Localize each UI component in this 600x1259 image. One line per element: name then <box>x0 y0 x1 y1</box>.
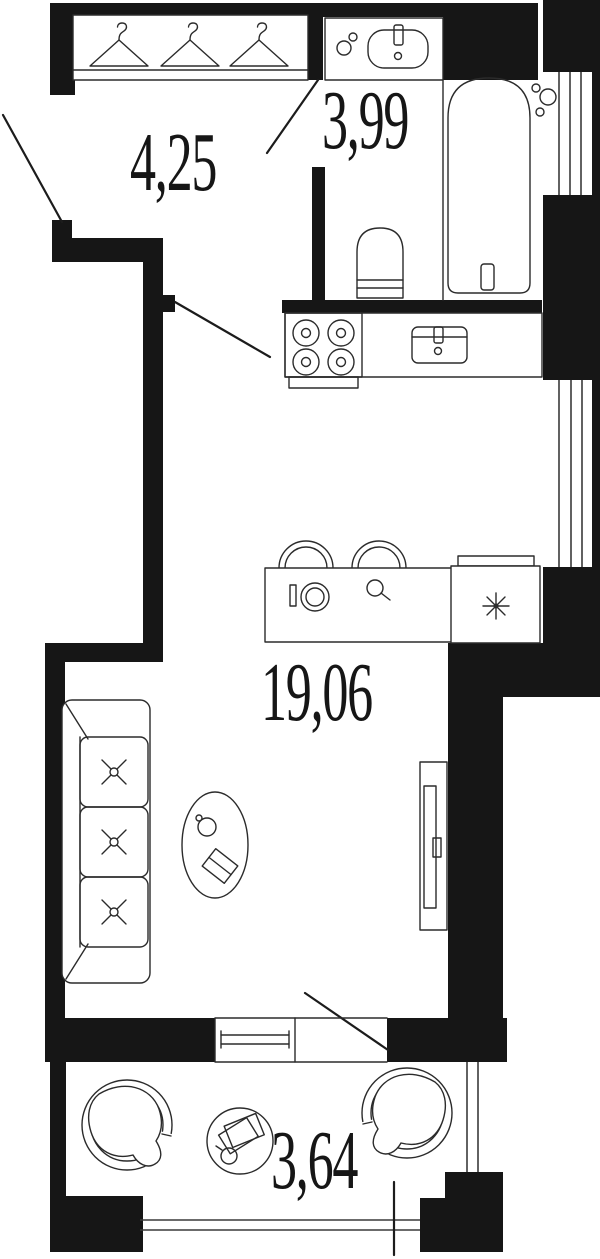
wardrobe <box>73 15 308 80</box>
room-area-label-bathroom: 3,99 <box>322 79 408 163</box>
washer-counter <box>265 568 452 642</box>
room-area-label-living: 19,06 <box>261 651 372 735</box>
refrigerator <box>451 556 540 643</box>
room-area-label-hallway: 4,25 <box>130 121 216 205</box>
balcony-glazing-right <box>467 1062 478 1172</box>
balcony-table <box>207 1108 273 1174</box>
balcony-railing <box>140 1220 420 1230</box>
door-swing-line-entry <box>3 115 62 222</box>
toilet <box>357 228 403 298</box>
door-swing-line-bathroom <box>267 80 318 153</box>
kitchen-counter <box>285 313 542 388</box>
door-swing-line-balcony <box>305 993 388 1050</box>
bathtub <box>448 78 556 293</box>
tv-console <box>420 762 447 930</box>
bar-stools <box>279 541 406 568</box>
plan-linework <box>0 0 600 1259</box>
oven-handle <box>289 377 358 388</box>
room-area-label-balcony: 3,64 <box>271 1119 357 1203</box>
balcony-window <box>215 1018 295 1062</box>
window-lines-right-lower <box>559 380 582 567</box>
vanity-sink <box>325 18 443 80</box>
coffee-table <box>182 792 248 898</box>
snowflake-icon <box>483 593 509 619</box>
leader-line-kitchen <box>175 302 270 357</box>
sofa <box>62 700 150 983</box>
window-lines-right-upper <box>559 72 581 195</box>
balcony-armchair-left <box>82 1080 199 1199</box>
floor-plan: 4,25 3,99 19,06 3,64 <box>0 0 600 1259</box>
